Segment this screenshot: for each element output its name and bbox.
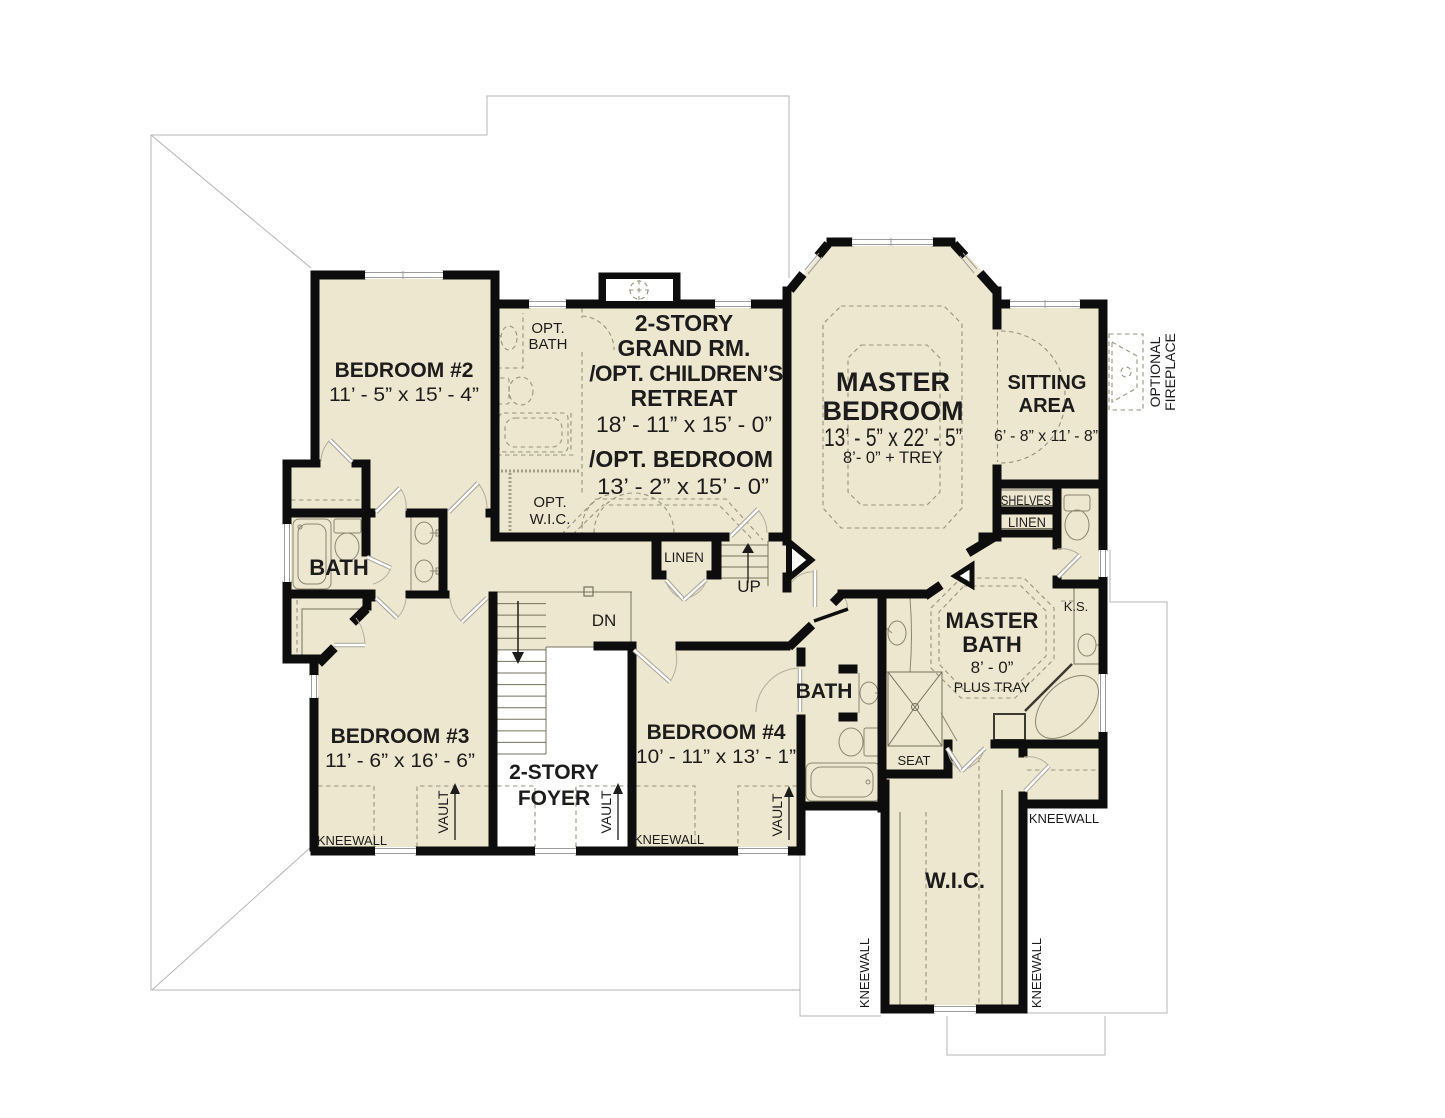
svg-text:VAULT: VAULT (598, 790, 614, 833)
svg-text:FIREPLACE: FIREPLACE (1162, 333, 1178, 411)
svg-text:AREA: AREA (1019, 395, 1076, 417)
svg-text:8’ - 0”: 8’ - 0” (971, 658, 1014, 677)
svg-text:8’- 0” + TREY: 8’- 0” + TREY (843, 448, 943, 467)
svg-text:SHELVES: SHELVES (1001, 492, 1051, 508)
svg-text:W.I.C.: W.I.C. (925, 868, 985, 893)
svg-text:VAULT: VAULT (769, 793, 785, 836)
svg-text:OPT.: OPT. (533, 494, 566, 511)
svg-text:KNEEWALL: KNEEWALL (1029, 811, 1099, 826)
svg-text:2-STORY: 2-STORY (635, 310, 733, 336)
svg-text:BATH: BATH (962, 632, 1021, 657)
svg-text:VAULT: VAULT (435, 790, 451, 833)
svg-text:BEDROOM #4: BEDROOM #4 (647, 721, 786, 744)
svg-text:MASTER: MASTER (946, 608, 1039, 633)
svg-text:K.S.: K.S. (1064, 599, 1089, 614)
svg-text:6’ - 8” x 11’ - 8”: 6’ - 8” x 11’ - 8” (994, 428, 1098, 445)
svg-text:RETREAT: RETREAT (631, 385, 738, 411)
svg-text:10’ - 11” x 13’ - 1”: 10’ - 11” x 13’ - 1” (636, 747, 796, 768)
svg-text:/OPT. BEDROOM: /OPT. BEDROOM (589, 446, 773, 472)
svg-text:BATH: BATH (529, 336, 568, 353)
svg-text:BEDROOM: BEDROOM (823, 396, 964, 426)
svg-text:KNEEWALL: KNEEWALL (317, 833, 387, 848)
svg-text:OPTIONAL: OPTIONAL (1147, 336, 1163, 407)
svg-text:OPT.: OPT. (531, 320, 564, 337)
svg-text:GRAND RM.: GRAND RM. (618, 335, 751, 361)
svg-text:LINEN: LINEN (1008, 514, 1046, 530)
svg-text:BATH: BATH (309, 555, 368, 580)
svg-text:11’ - 6” x 16’ - 6”: 11’ - 6” x 16’ - 6” (325, 751, 475, 772)
svg-text:LINEN: LINEN (664, 550, 704, 565)
svg-text:PLUS TRAY: PLUS TRAY (954, 679, 1031, 695)
svg-text:18’ - 11” x 15’ - 0”: 18’ - 11” x 15’ - 0” (596, 412, 772, 437)
svg-text:SEAT: SEAT (898, 753, 931, 768)
svg-text:13’ - 2” x 15’ - 0”: 13’ - 2” x 15’ - 0” (597, 474, 769, 499)
svg-text:BATH: BATH (796, 680, 853, 703)
svg-text:SITTING: SITTING (1008, 372, 1087, 394)
svg-text:BEDROOM #2: BEDROOM #2 (335, 359, 474, 382)
svg-text:2-STORY: 2-STORY (509, 761, 599, 784)
svg-text:UP: UP (737, 577, 761, 596)
svg-text:KNEEWALL: KNEEWALL (634, 832, 704, 847)
svg-text:BEDROOM #3: BEDROOM #3 (331, 725, 470, 748)
svg-text:/OPT. CHILDREN’S: /OPT. CHILDREN’S (589, 361, 783, 386)
svg-text:KNEEWALL: KNEEWALL (1029, 938, 1044, 1008)
svg-text:MASTER: MASTER (836, 367, 950, 397)
svg-text:KNEEWALL: KNEEWALL (857, 938, 872, 1008)
svg-text:11’ - 5” x 15’ - 4”: 11’ - 5” x 15’ - 4” (329, 385, 479, 406)
svg-text:FOYER: FOYER (518, 787, 590, 810)
svg-text:DN: DN (592, 611, 617, 630)
svg-text:W.I.C.: W.I.C. (530, 511, 571, 528)
